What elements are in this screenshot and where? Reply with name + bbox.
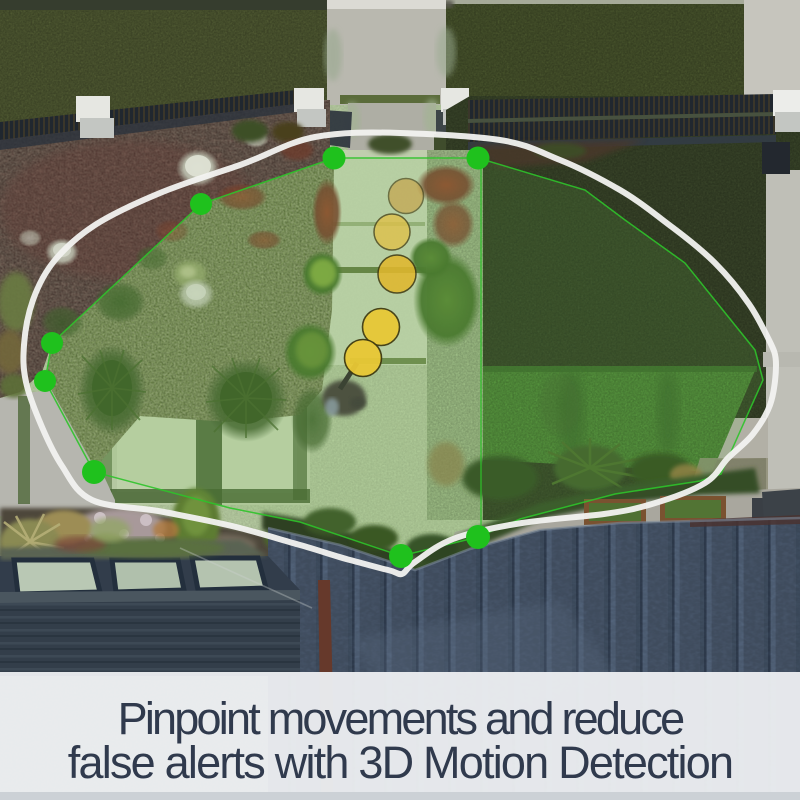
svg-text:false alerts with 3D Motion De: false alerts with 3D Motion Detection	[68, 737, 732, 788]
